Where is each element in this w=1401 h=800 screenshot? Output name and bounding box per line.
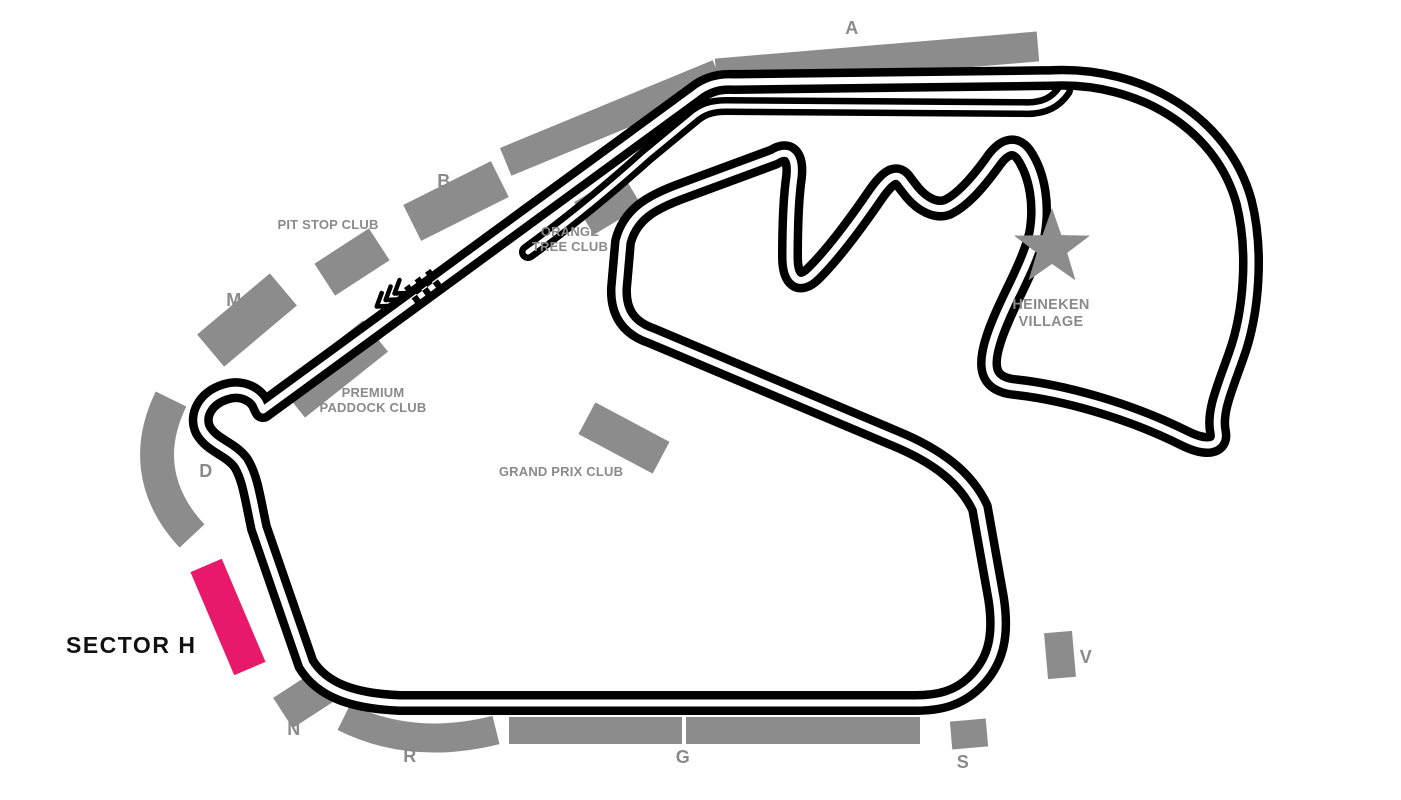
label-pit-stop-club: PIT STOP CLUB [277, 217, 378, 232]
label-orange-tree-line1: ORANGE [541, 224, 599, 239]
label-sector-b: B [437, 171, 451, 191]
label-sector-r: R [403, 746, 417, 766]
label-sector-n: N [287, 719, 301, 739]
label-sector-g: G [676, 747, 691, 767]
grandstand-s[interactable] [950, 718, 988, 749]
grandstand-g-right[interactable] [686, 717, 920, 744]
label-grand-prix-club: GRAND PRIX CLUB [499, 464, 623, 479]
sector-h-label: SECTOR H [66, 632, 196, 658]
circuit-map: A B M D N R G S V PIT STOP CLUB ORANGE T… [0, 0, 1401, 800]
track-map-svg: A B M D N R G S V PIT STOP CLUB ORANGE T… [0, 0, 1401, 800]
label-sector-s: S [957, 752, 970, 772]
label-heineken-line1: HEINEKEN [1012, 297, 1089, 313]
grandstand-v[interactable] [1044, 631, 1076, 679]
label-sector-m: M [226, 290, 242, 310]
label-sector-a: A [845, 18, 859, 38]
label-orange-tree-line2: TREE CLUB [532, 239, 608, 254]
grandstand-g-left[interactable] [509, 717, 682, 744]
label-premium-line2: PADDOCK CLUB [320, 400, 427, 415]
label-premium-line1: PREMIUM [342, 385, 405, 400]
label-heineken-line2: VILLAGE [1019, 314, 1084, 330]
label-sector-d: D [199, 461, 213, 481]
label-sector-v: V [1080, 647, 1093, 667]
